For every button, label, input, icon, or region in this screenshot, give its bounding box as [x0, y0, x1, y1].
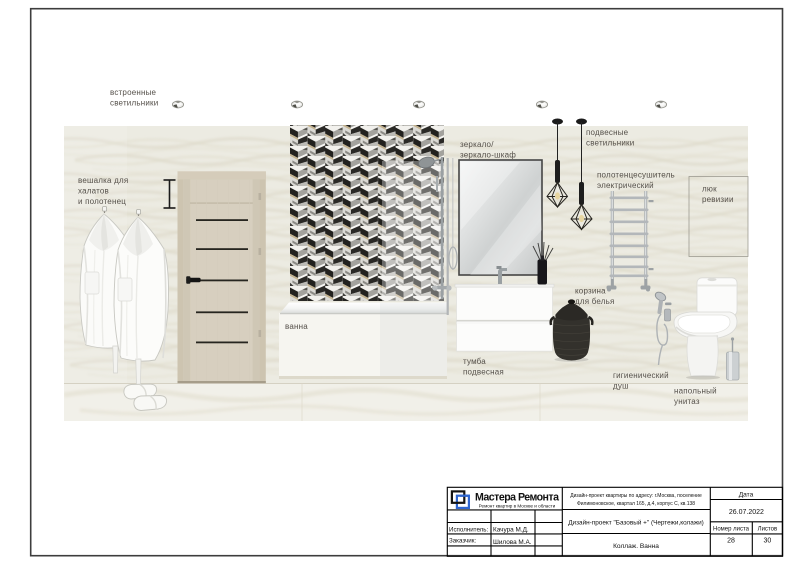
- svg-text:Коллаж. Ванна: Коллаж. Ванна: [613, 543, 659, 550]
- svg-text:тумба: тумба: [463, 357, 486, 366]
- svg-text:Дизайн-проект квартиры по адр: Дизайн-проект квартиры по адресу: г.Моск…: [570, 492, 702, 499]
- svg-text:для белья: для белья: [575, 297, 615, 306]
- svg-text:Мастера Ремонта: Мастера Ремонта: [475, 492, 559, 504]
- svg-text:Качура М.Д.: Качура М.Д.: [493, 527, 529, 534]
- svg-text:напольный: напольный: [674, 387, 717, 396]
- svg-text:полотенцесушитель: полотенцесушитель: [597, 171, 675, 180]
- svg-text:электрический: электрический: [597, 181, 654, 190]
- svg-text:28: 28: [727, 538, 735, 545]
- svg-text:гигиенический: гигиенический: [613, 371, 669, 380]
- svg-text:26.07.2022: 26.07.2022: [729, 509, 764, 516]
- svg-text:светильники: светильники: [586, 139, 634, 148]
- svg-text:и полотенец: и полотенец: [78, 197, 126, 206]
- svg-text:Исполнитель:: Исполнитель:: [449, 527, 489, 534]
- svg-text:зеркало-шкаф: зеркало-шкаф: [460, 151, 516, 160]
- svg-text:Листов: Листов: [758, 527, 778, 533]
- svg-text:Номер листа: Номер листа: [713, 527, 750, 533]
- svg-text:унитаз: унитаз: [674, 397, 700, 406]
- svg-text:зеркало/: зеркало/: [460, 140, 494, 149]
- svg-text:корзина: корзина: [575, 287, 606, 296]
- svg-text:душ: душ: [613, 382, 629, 391]
- svg-text:встроенные: встроенные: [110, 88, 157, 97]
- svg-text:ревизии: ревизии: [702, 195, 734, 204]
- svg-text:ванна: ванна: [285, 322, 308, 331]
- svg-text:люк: люк: [702, 185, 717, 194]
- svg-text:Ремонт квартир в Москве и обла: Ремонт квартир в Москве и области: [479, 504, 556, 509]
- svg-text:Дизайн-проект "Базовый +" (Чер: Дизайн-проект "Базовый +" (Чертежи,колаж…: [568, 519, 704, 527]
- svg-text:светильники: светильники: [110, 99, 158, 108]
- svg-text:30: 30: [764, 538, 772, 545]
- svg-text:Дата: Дата: [739, 492, 754, 499]
- svg-text:вешалка для: вешалка для: [78, 176, 128, 185]
- svg-text:подвесные: подвесные: [586, 128, 629, 137]
- svg-text:Заказчик:: Заказчик:: [449, 538, 476, 545]
- svg-text:подвесная: подвесная: [463, 368, 504, 377]
- svg-text:Шилова М.А.: Шилова М.А.: [493, 539, 532, 546]
- svg-text:халатов: халатов: [78, 187, 109, 196]
- svg-text:Филимоновское, квартал 165, д.: Филимоновское, квартал 165, д.4, корпус …: [577, 501, 695, 507]
